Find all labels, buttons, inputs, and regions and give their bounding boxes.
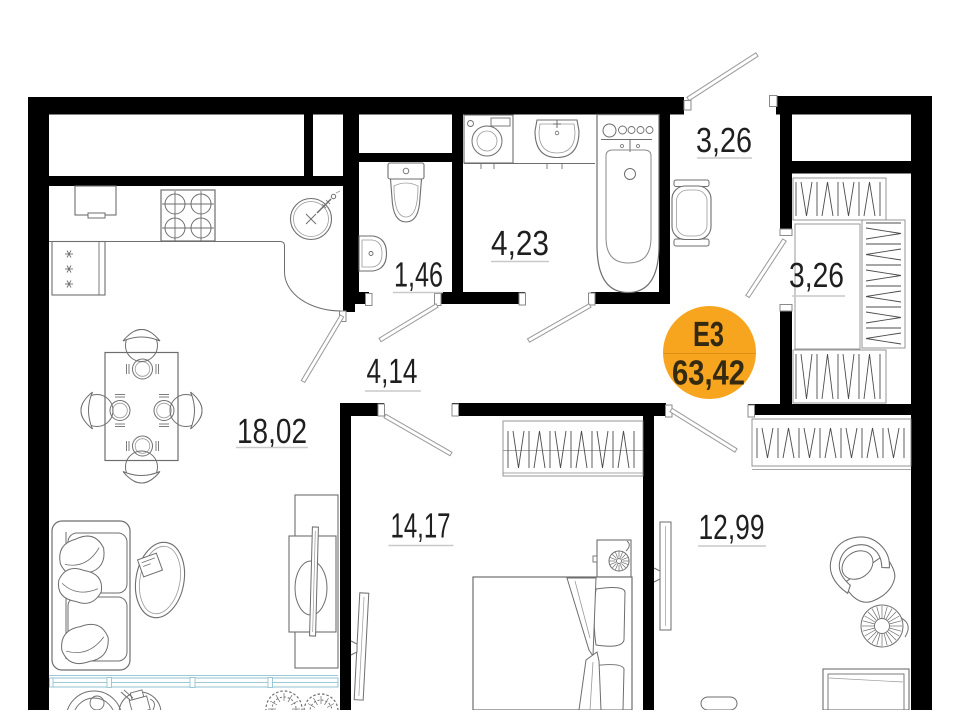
svg-text:63,42: 63,42 <box>672 354 745 393</box>
svg-text:12,99: 12,99 <box>699 508 765 547</box>
svg-text:3,26: 3,26 <box>696 121 752 160</box>
svg-text:14,17: 14,17 <box>391 507 451 546</box>
svg-text:3,26: 3,26 <box>789 256 844 295</box>
svg-text:18,02: 18,02 <box>237 412 307 451</box>
svg-text:4,14: 4,14 <box>367 352 418 391</box>
svg-text:1,46: 1,46 <box>394 256 443 295</box>
svg-text:Е3: Е3 <box>693 315 724 354</box>
svg-text:4,23: 4,23 <box>491 224 549 263</box>
